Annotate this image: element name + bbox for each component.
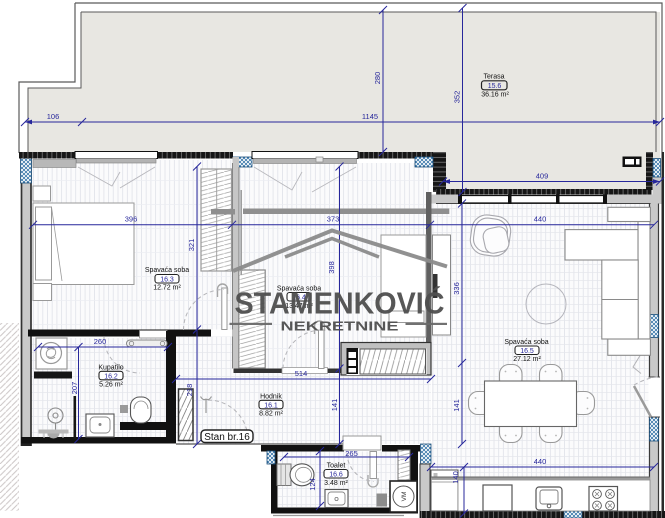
svg-text:396: 396 xyxy=(125,215,138,224)
svg-text:Stan br.16: Stan br.16 xyxy=(204,432,250,443)
svg-text:Toalet: Toalet xyxy=(327,463,346,470)
svg-text:36.16 m²: 36.16 m² xyxy=(481,92,509,99)
svg-text:440: 440 xyxy=(534,457,547,466)
svg-text:141: 141 xyxy=(330,399,339,412)
svg-text:16.2: 16.2 xyxy=(104,373,118,380)
svg-text:409: 409 xyxy=(536,172,549,181)
svg-text:218: 218 xyxy=(185,384,194,397)
svg-text:3.48 m²: 3.48 m² xyxy=(324,480,348,487)
svg-text:Kupatilo: Kupatilo xyxy=(98,365,123,372)
svg-text:352: 352 xyxy=(453,91,462,104)
svg-text:16.1: 16.1 xyxy=(264,402,278,409)
svg-text:440: 440 xyxy=(534,215,547,224)
svg-text:27.12 m²: 27.12 m² xyxy=(513,356,541,363)
svg-text:Spavaća soba: Spavaća soba xyxy=(504,339,548,346)
svg-text:Terasa: Terasa xyxy=(483,74,504,81)
svg-text:VM: VM xyxy=(401,492,408,502)
svg-text:260: 260 xyxy=(94,337,107,346)
svg-text:1145: 1145 xyxy=(362,112,378,121)
svg-text:106: 106 xyxy=(47,112,60,121)
svg-text:207: 207 xyxy=(70,382,79,395)
svg-text:16.6: 16.6 xyxy=(329,472,343,479)
svg-text:12.72 m²: 12.72 m² xyxy=(153,285,181,292)
svg-text:321: 321 xyxy=(187,239,196,252)
svg-text:280: 280 xyxy=(373,72,382,85)
svg-text:15.6: 15.6 xyxy=(488,83,502,90)
svg-text:398: 398 xyxy=(327,261,336,274)
svg-text:336: 336 xyxy=(452,282,461,295)
svg-text:265: 265 xyxy=(345,449,358,458)
svg-text:141: 141 xyxy=(452,399,461,412)
svg-text:140: 140 xyxy=(451,471,460,484)
svg-text:STAMENKOVIĆ: STAMENKOVIĆ xyxy=(235,285,445,321)
svg-text:16.3: 16.3 xyxy=(160,277,174,284)
svg-text:8.82 m²: 8.82 m² xyxy=(259,411,283,418)
svg-text:Spavaća soba: Spavaća soba xyxy=(145,267,189,274)
svg-text:Hodnik: Hodnik xyxy=(260,394,282,401)
svg-text:124: 124 xyxy=(308,478,317,491)
svg-text:5.26 m²: 5.26 m² xyxy=(99,382,123,389)
svg-text:514: 514 xyxy=(295,369,308,378)
svg-text:16.5: 16.5 xyxy=(520,348,534,355)
svg-text:373: 373 xyxy=(327,215,340,224)
svg-text:NEKRETNINE: NEKRETNINE xyxy=(281,319,399,334)
